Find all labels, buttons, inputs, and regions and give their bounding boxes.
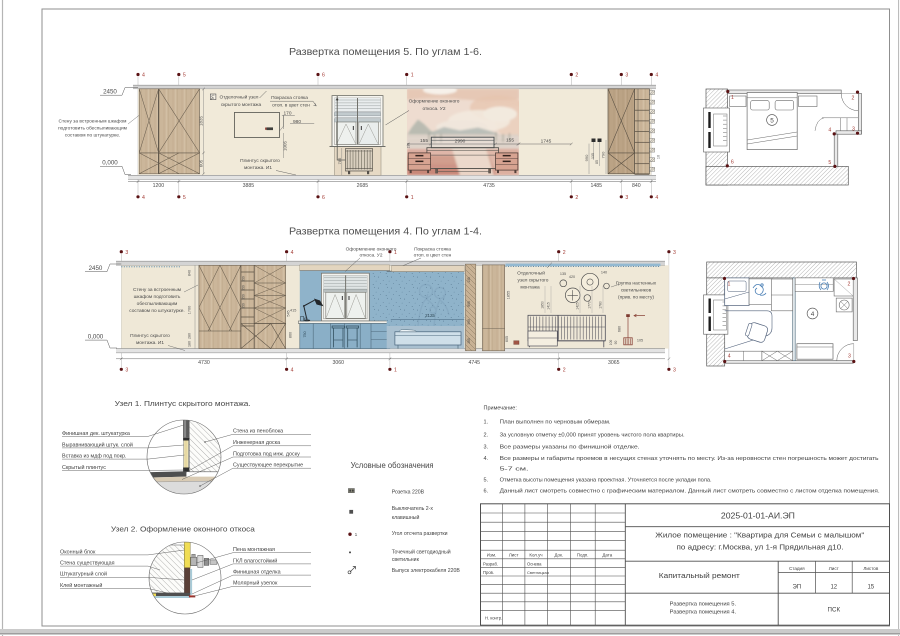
svg-text:5: 5 (770, 117, 774, 124)
svg-text:Покраска стояка: Покраска стояка (414, 246, 451, 252)
svg-text:4730: 4730 (198, 360, 210, 366)
svg-text:1700: 1700 (188, 306, 192, 314)
svg-text:Пена монтажная: Пена монтажная (233, 547, 275, 553)
svg-text:Существующее перекрытие: Существующее перекрытие (233, 463, 303, 469)
svg-text:2: 2 (575, 195, 578, 201)
svg-text:светильник: светильник (392, 557, 420, 563)
svg-text:Финишная отделка: Финишная отделка (233, 570, 281, 576)
svg-text:1: 1 (728, 282, 731, 288)
svg-text:шкафом подготовить: шкафом подготовить (134, 294, 181, 300)
svg-text:1485: 1485 (591, 183, 603, 189)
svg-text:905: 905 (467, 301, 471, 307)
svg-text:750: 750 (303, 331, 307, 337)
svg-text:2025-01-01-АИ.ЭП: 2025-01-01-АИ.ЭП (721, 512, 795, 521)
svg-text:860: 860 (289, 332, 293, 338)
svg-text:100: 100 (609, 340, 613, 346)
svg-text:Выключатель 2-х: Выключатель 2-х (392, 506, 434, 512)
svg-text:3: 3 (848, 354, 851, 360)
svg-text:4: 4 (291, 368, 294, 374)
svg-text:990: 990 (584, 154, 589, 161)
svg-text:Узел 2. Оформление оконного о: Узел 2. Оформление оконного откоса (111, 525, 256, 534)
svg-text:Листов: Листов (863, 566, 878, 571)
svg-text:135: 135 (591, 153, 595, 159)
svg-text:Изм.: Изм. (487, 552, 496, 557)
svg-text:Оформление оконного: Оформление оконного (346, 246, 397, 252)
svg-text:ГКЛ влагостойкий: ГКЛ влагостойкий (233, 557, 277, 564)
svg-text:2: 2 (563, 368, 566, 374)
svg-text:Жилое помещение : "Квартира д: Жилое помещение : "Квартира для Семьи с … (655, 531, 865, 540)
svg-text:подготовить обеспыливающим: подготовить обеспыливающим (58, 126, 127, 132)
svg-text:Отделочный узел: Отделочный узел (220, 94, 259, 101)
svg-text:Лист: Лист (509, 552, 519, 557)
svg-text:Отделочный: Отделочный (517, 270, 545, 277)
svg-text:1855: 1855 (507, 291, 511, 299)
svg-text:2.: 2. (484, 433, 489, 439)
svg-text:Лист: Лист (829, 566, 840, 571)
svg-text:Розетка 220В: Розетка 220В (392, 490, 425, 496)
svg-text:План выполнен по черновым обме: План выполнен по черновым обмерам. (500, 420, 612, 426)
svg-text:2685: 2685 (357, 183, 369, 189)
svg-text:420: 420 (569, 275, 575, 279)
svg-text:Оснева: Оснева (527, 561, 542, 566)
svg-text:5: 5 (183, 195, 186, 201)
svg-text:Выравнивающий штук. слой: Выравнивающий штук. слой (62, 441, 133, 448)
svg-text:6: 6 (322, 195, 325, 201)
svg-text:1: 1 (411, 73, 414, 79)
svg-text:1: 1 (394, 368, 397, 374)
svg-text:1: 1 (411, 195, 414, 201)
svg-text:350: 350 (241, 285, 245, 291)
svg-text:90: 90 (614, 341, 618, 345)
svg-text:6.: 6. (484, 489, 489, 495)
svg-text:Примечание:: Примечание: (484, 406, 518, 412)
svg-text:350: 350 (241, 303, 245, 309)
svg-text:Точечный светодиодный: Точечный светодиодный (392, 549, 451, 556)
svg-text:Все размеры указаны по финишно: Все размеры указаны по финишной отделке. (500, 444, 641, 451)
svg-text:ПСК: ПСК (828, 607, 841, 614)
svg-text:монтажа: монтажа (520, 286, 540, 291)
svg-text:790: 790 (601, 151, 606, 158)
svg-text:2450: 2450 (89, 265, 103, 272)
svg-text:Развертка помещения 4.: Развертка помещения 4. (670, 610, 737, 616)
svg-text:2990: 2990 (455, 139, 466, 145)
svg-text:3: 3 (852, 127, 855, 133)
svg-text:Условные обозначения: Условные обозначения (351, 461, 434, 470)
svg-text:Оконный блок: Оконный блок (60, 548, 96, 555)
svg-text:1835: 1835 (199, 115, 204, 126)
svg-text:4: 4 (291, 250, 294, 256)
svg-text:Скрытый плинтус: Скрытый плинтус (62, 464, 106, 471)
svg-text:4: 4 (655, 195, 658, 201)
svg-text:170: 170 (283, 111, 291, 117)
svg-text:Узел 1. Плинтус скрытого монт: Узел 1. Плинтус скрытого монтажа. (115, 399, 251, 408)
svg-text:85: 85 (595, 160, 599, 164)
svg-text:Дата: Дата (602, 552, 612, 557)
svg-text:15: 15 (867, 585, 874, 591)
svg-text:4: 4 (811, 311, 815, 318)
svg-text:415: 415 (290, 309, 296, 313)
svg-text:1: 1 (355, 532, 358, 538)
svg-text:откоса. У2: откоса. У2 (359, 253, 382, 259)
svg-text:отоп. в цвет стен: отоп. в цвет стен (414, 254, 452, 259)
svg-text:Плинтус скрытого: Плинтус скрытого (240, 158, 280, 164)
svg-text:1: 1 (731, 95, 734, 101)
svg-text:1425: 1425 (576, 302, 580, 310)
svg-text:4: 4 (728, 354, 731, 360)
svg-text:4735: 4735 (483, 183, 495, 189)
svg-text:12: 12 (830, 585, 837, 591)
svg-text:4745: 4745 (469, 360, 481, 366)
svg-text:105: 105 (637, 339, 643, 343)
svg-text:1005: 1005 (282, 140, 287, 151)
svg-text:Отметка высоты помещения указа: Отметка высоты помещения указана проектн… (500, 478, 712, 484)
svg-text:Развертка помещения 5. По угл: Развертка помещения 5. По углам 1-6. (289, 47, 482, 58)
svg-text:Угол отсчета развертки: Угол отсчета развертки (392, 531, 448, 537)
svg-text:Покраска стояка: Покраска стояка (271, 95, 308, 101)
svg-text:Развертка помещения 5.: Развертка помещения 5. (670, 602, 737, 608)
svg-text:Стену за встроенным шкафом: Стену за встроенным шкафом (59, 119, 127, 125)
svg-text:4: 4 (142, 195, 145, 201)
svg-text:4: 4 (828, 128, 831, 134)
svg-text:составом по штукатурке.: составом по штукатурке. (129, 309, 184, 314)
svg-text:0,000: 0,000 (88, 333, 104, 340)
svg-text:Стену за встроенным: Стену за встроенным (133, 287, 181, 293)
svg-text:3: 3 (125, 250, 128, 256)
svg-text:1745: 1745 (541, 139, 552, 145)
svg-text:5-7 см.: 5-7 см. (500, 467, 530, 473)
svg-text:Подготовка под инж. доску: Подготовка под инж. доску (233, 451, 300, 457)
svg-text:Капитальный ремонт: Капитальный ремонт (659, 571, 741, 580)
svg-text:605: 605 (505, 336, 509, 342)
svg-text:узел скрытого: узел скрытого (518, 279, 549, 284)
svg-text:350: 350 (241, 276, 245, 282)
svg-text:Инженерная доска: Инженерная доска (233, 440, 280, 446)
svg-text:Выпуск электрокабеля 220В: Выпуск электрокабеля 220В (392, 568, 461, 574)
svg-text:840: 840 (632, 183, 641, 189)
svg-text:3060: 3060 (332, 360, 344, 366)
svg-text:155: 155 (420, 138, 428, 144)
svg-text:Светлицкая: Светлицкая (527, 570, 549, 575)
svg-text:1200: 1200 (153, 183, 165, 189)
svg-text:Развертка помещения 4. По угл: Развертка помещения 4. По углам 1-4. (289, 227, 482, 238)
svg-text:140: 140 (601, 271, 607, 275)
svg-text:2: 2 (575, 73, 578, 79)
svg-text:Штукатурный слой: Штукатурный слой (60, 571, 107, 578)
svg-text:откоса. У2: откоса. У2 (422, 106, 445, 112)
svg-text:6: 6 (322, 73, 325, 79)
svg-text:составом по штукатурке.: составом по штукатурке. (65, 134, 120, 139)
svg-text:3: 3 (625, 73, 628, 79)
svg-text:2450: 2450 (103, 88, 117, 95)
svg-text:1850: 1850 (541, 301, 545, 309)
svg-text:Молярный узелок: Молярный узелок (233, 580, 278, 587)
svg-text:10: 10 (657, 155, 661, 159)
svg-text:2125: 2125 (425, 313, 435, 318)
svg-text:180: 180 (188, 341, 192, 347)
svg-text:клавишный: клавишный (392, 514, 420, 521)
svg-text:4: 4 (142, 73, 145, 79)
svg-text:Оформление оконного: Оформление оконного (409, 99, 460, 105)
svg-text:3.: 3. (484, 445, 489, 451)
svg-text:6: 6 (731, 160, 734, 166)
svg-text:785: 785 (337, 157, 342, 164)
svg-text:отоп. в цвет стен: отоп. в цвет стен (272, 103, 310, 108)
svg-text:0,000: 0,000 (102, 160, 118, 167)
svg-text:155: 155 (506, 138, 514, 144)
svg-text:3: 3 (673, 250, 676, 256)
svg-text:680: 680 (618, 326, 622, 332)
svg-text:2: 2 (563, 250, 566, 256)
svg-text:(прив. по месту): (прив. по месту) (618, 295, 654, 301)
svg-text:Стена из пеноблока: Стена из пеноблока (233, 429, 283, 435)
svg-text:3: 3 (673, 368, 676, 374)
svg-text:монтажа. И1: монтажа. И1 (244, 165, 272, 171)
svg-text:3065: 3065 (608, 360, 620, 366)
svg-text:980: 980 (293, 119, 301, 125)
svg-text:Все размеры и габариты проемо: Все размеры и габариты проемов в несущих… (500, 456, 879, 462)
svg-text:195: 195 (407, 143, 411, 149)
svg-text:За условную отметку ±0,000 при: За условную отметку ±0,000 принят уровен… (500, 433, 685, 439)
svg-text:165: 165 (467, 338, 471, 344)
svg-text:Кол.уч: Кол.уч (529, 552, 542, 557)
svg-text:Данный лист смотреть совместно: Данный лист смотреть совместно с графиче… (500, 488, 881, 495)
svg-text:Клей монтажный: Клей монтажный (60, 582, 102, 589)
svg-text:1780: 1780 (599, 301, 603, 309)
svg-text:2: 2 (852, 96, 855, 102)
svg-text:135: 135 (467, 277, 471, 283)
svg-text:Разраб.: Разраб. (483, 561, 498, 566)
svg-text:4: 4 (655, 73, 658, 79)
svg-text:605: 605 (199, 159, 204, 167)
svg-text:280: 280 (188, 333, 192, 339)
svg-text:5.: 5. (484, 478, 489, 484)
svg-text:Плинтус скрытого: Плинтус скрытого (130, 333, 170, 339)
svg-text:скрытого монтажа: скрытого монтажа (221, 103, 262, 108)
svg-text:по адресу: г.Москва, ул 1-я П: по адресу: г.Москва, ул 1-я Прядильная д… (677, 543, 844, 552)
svg-text:Н. контр.: Н. контр. (485, 616, 502, 621)
svg-text:3: 3 (125, 368, 128, 374)
svg-text:ЭП: ЭП (792, 585, 801, 591)
svg-text:1.: 1. (484, 420, 489, 426)
svg-text:135: 135 (560, 272, 566, 276)
svg-text:390: 390 (467, 319, 471, 325)
svg-text:Подп.: Подп. (577, 552, 589, 557)
svg-text:Финишная дек. штукатурка: Финишная дек. штукатурка (62, 431, 130, 437)
svg-text:1415: 1415 (547, 302, 551, 310)
svg-text:350: 350 (241, 294, 245, 300)
svg-text:светильников: светильников (621, 289, 652, 294)
svg-text:5: 5 (828, 160, 831, 166)
svg-text:3: 3 (625, 195, 628, 201)
svg-text:монтажа. И1: монтажа. И1 (136, 340, 164, 346)
svg-text:Стадия: Стадия (789, 566, 805, 571)
svg-text:Пров.: Пров. (483, 570, 494, 575)
svg-text:5: 5 (183, 73, 186, 79)
svg-text:3885: 3885 (243, 183, 255, 189)
svg-text:4.: 4. (484, 456, 489, 462)
svg-text:Группа настенных: Группа настенных (616, 281, 657, 287)
svg-text:Док.: Док. (554, 552, 563, 557)
svg-text:1770: 1770 (588, 301, 592, 309)
svg-text:840: 840 (188, 270, 192, 276)
svg-text:2: 2 (848, 282, 851, 288)
svg-text:Стена существующая: Стена существующая (60, 561, 115, 567)
svg-text:обеспыливающим: обеспыливающим (137, 301, 178, 307)
svg-text:Вставка из мдф под покр.: Вставка из мдф под покр. (62, 454, 127, 460)
